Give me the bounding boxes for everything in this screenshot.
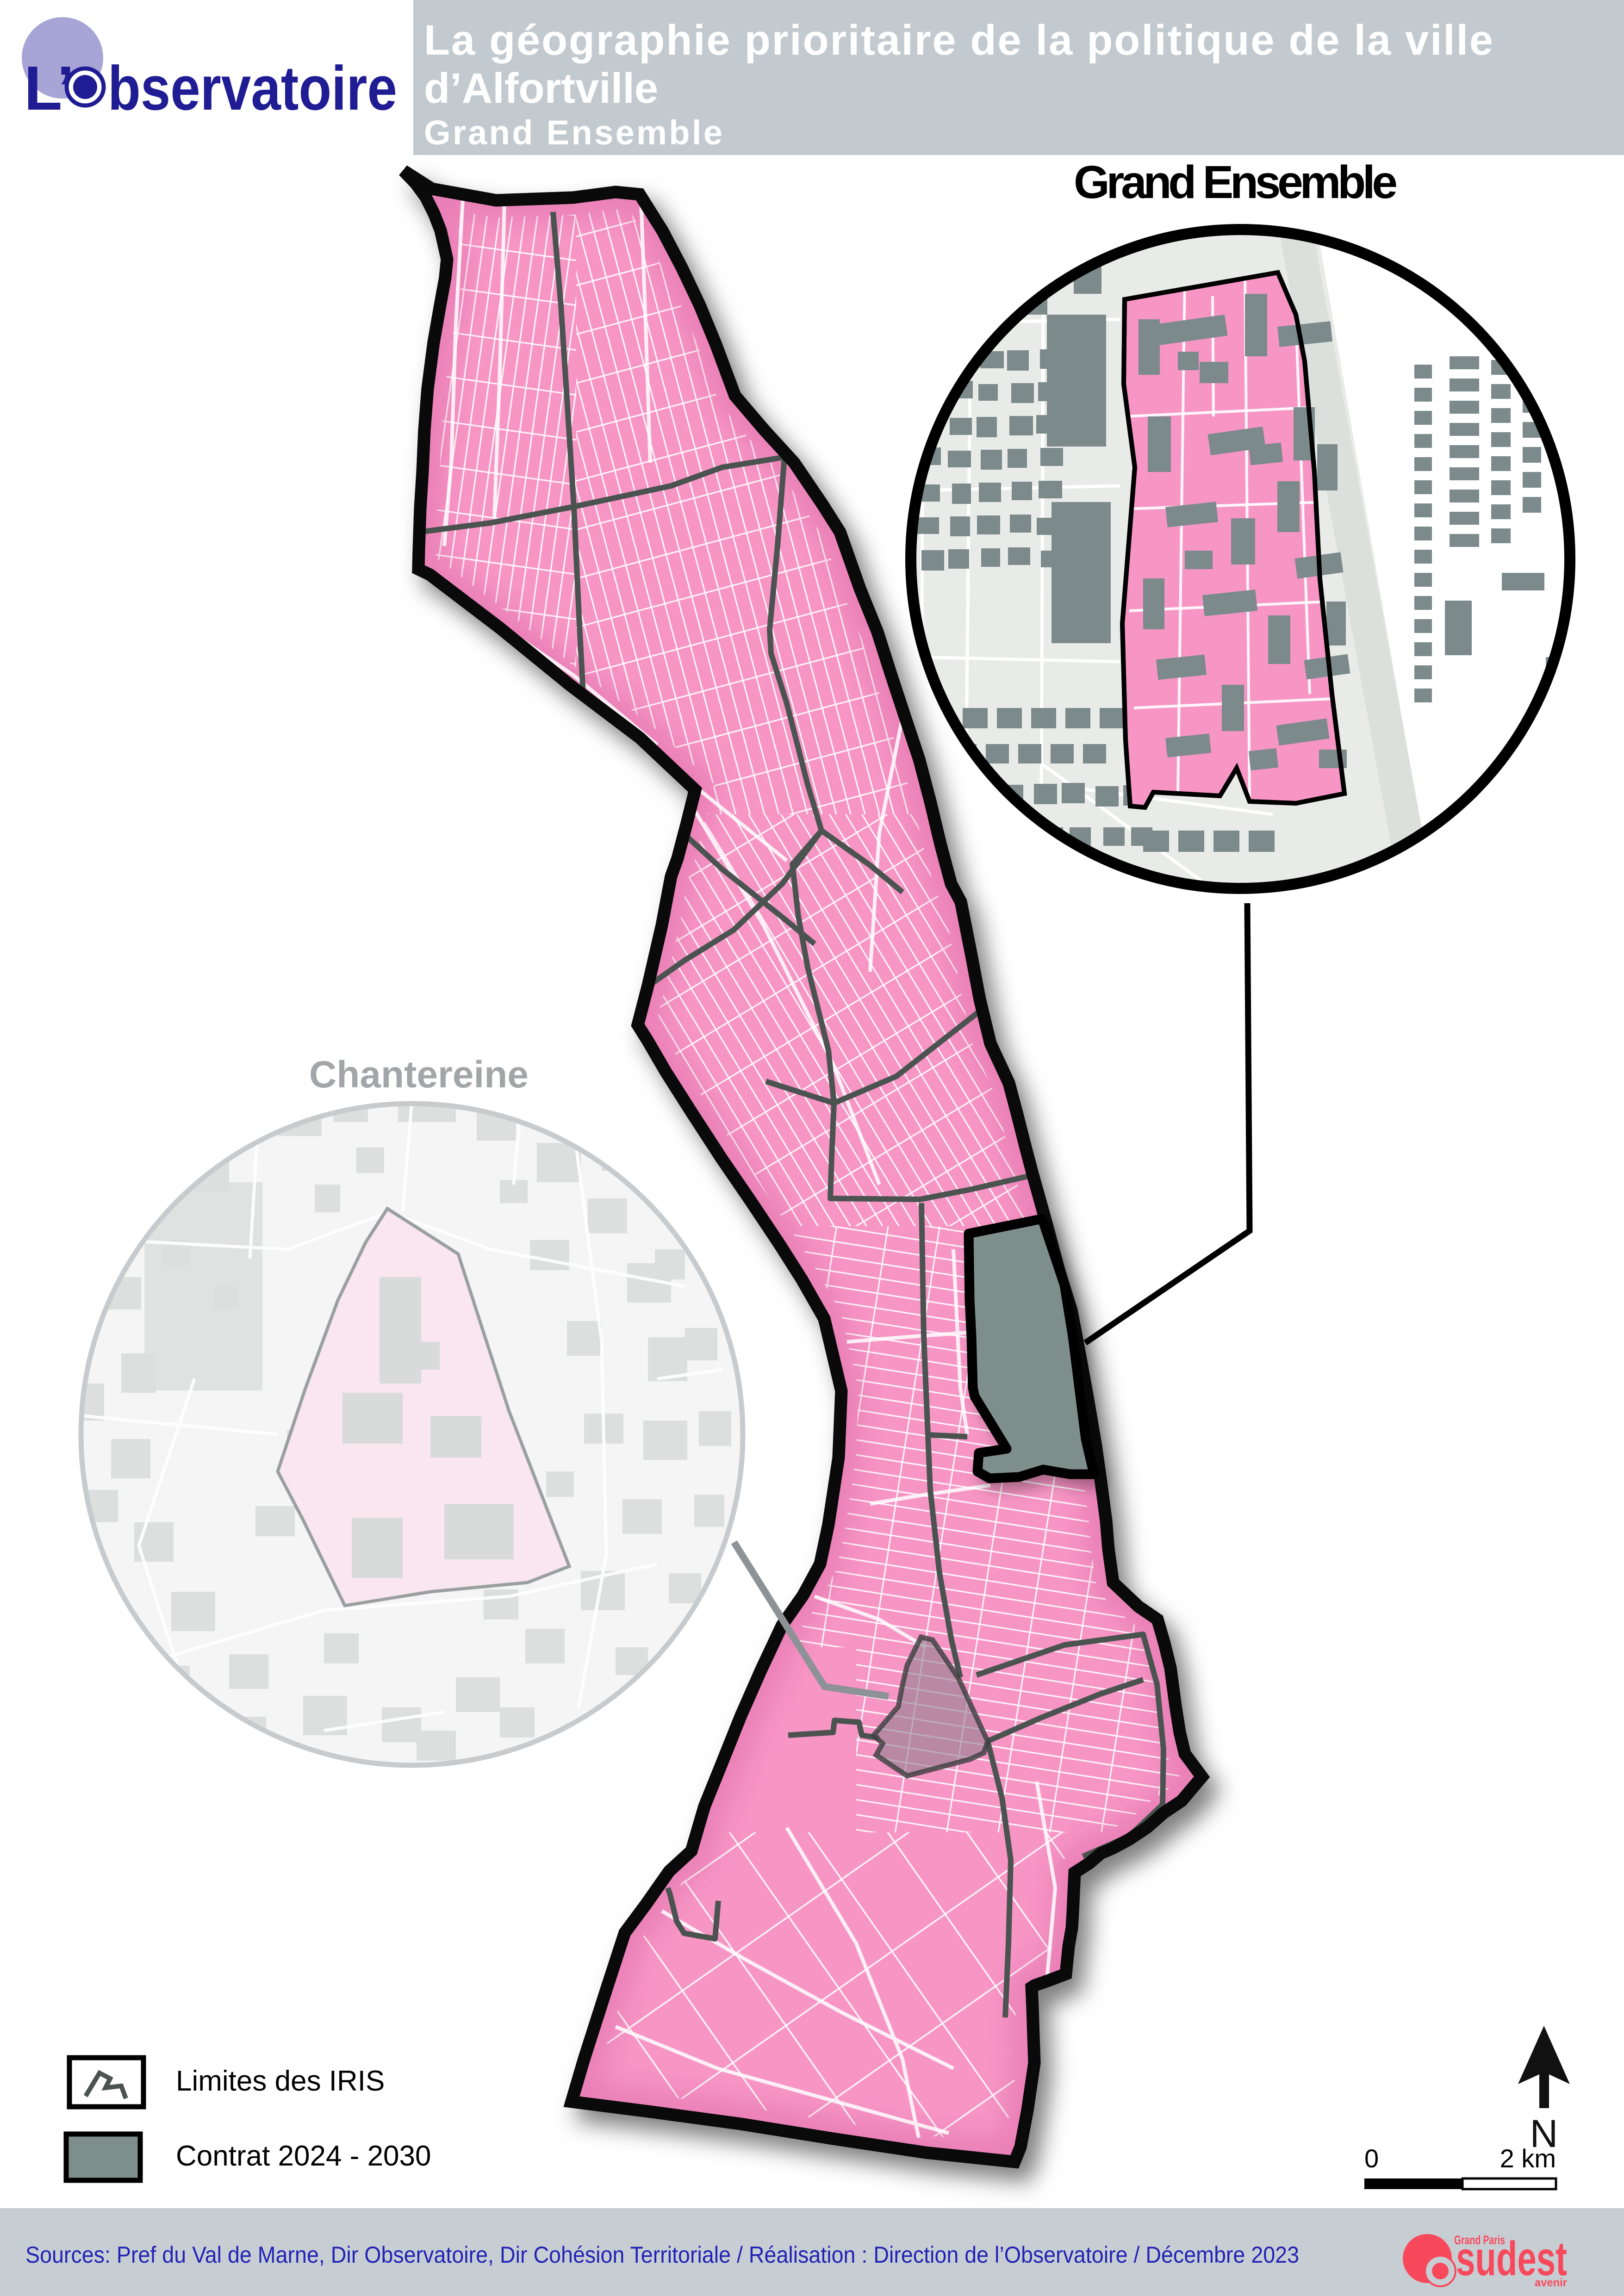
svg-text:Limites des IRIS: Limites des IRIS: [176, 2065, 385, 2097]
svg-text:Contrat 2024 - 2030: Contrat 2024 - 2030: [176, 2140, 431, 2172]
svg-text:0: 0: [1364, 2144, 1379, 2173]
svg-text:2 km: 2 km: [1500, 2144, 1556, 2173]
svg-text:Grand Ensemble: Grand Ensemble: [1074, 156, 1398, 208]
svg-text:d’Alfortville: d’Alfortville: [424, 65, 658, 112]
svg-text:avenir: avenir: [1535, 2277, 1567, 2289]
svg-text:Sources: Pref du Val de Marne,: Sources: Pref du Val de Marne, Dir Obser…: [25, 2242, 1299, 2268]
svg-text:Chantereine: Chantereine: [309, 1054, 529, 1096]
svg-text:bservatoire: bservatoire: [108, 53, 397, 123]
svg-text:La géographie prioritaire de l: La géographie prioritaire de la politiqu…: [424, 17, 1493, 64]
svg-text:Grand Ensemble: Grand Ensemble: [424, 113, 722, 152]
